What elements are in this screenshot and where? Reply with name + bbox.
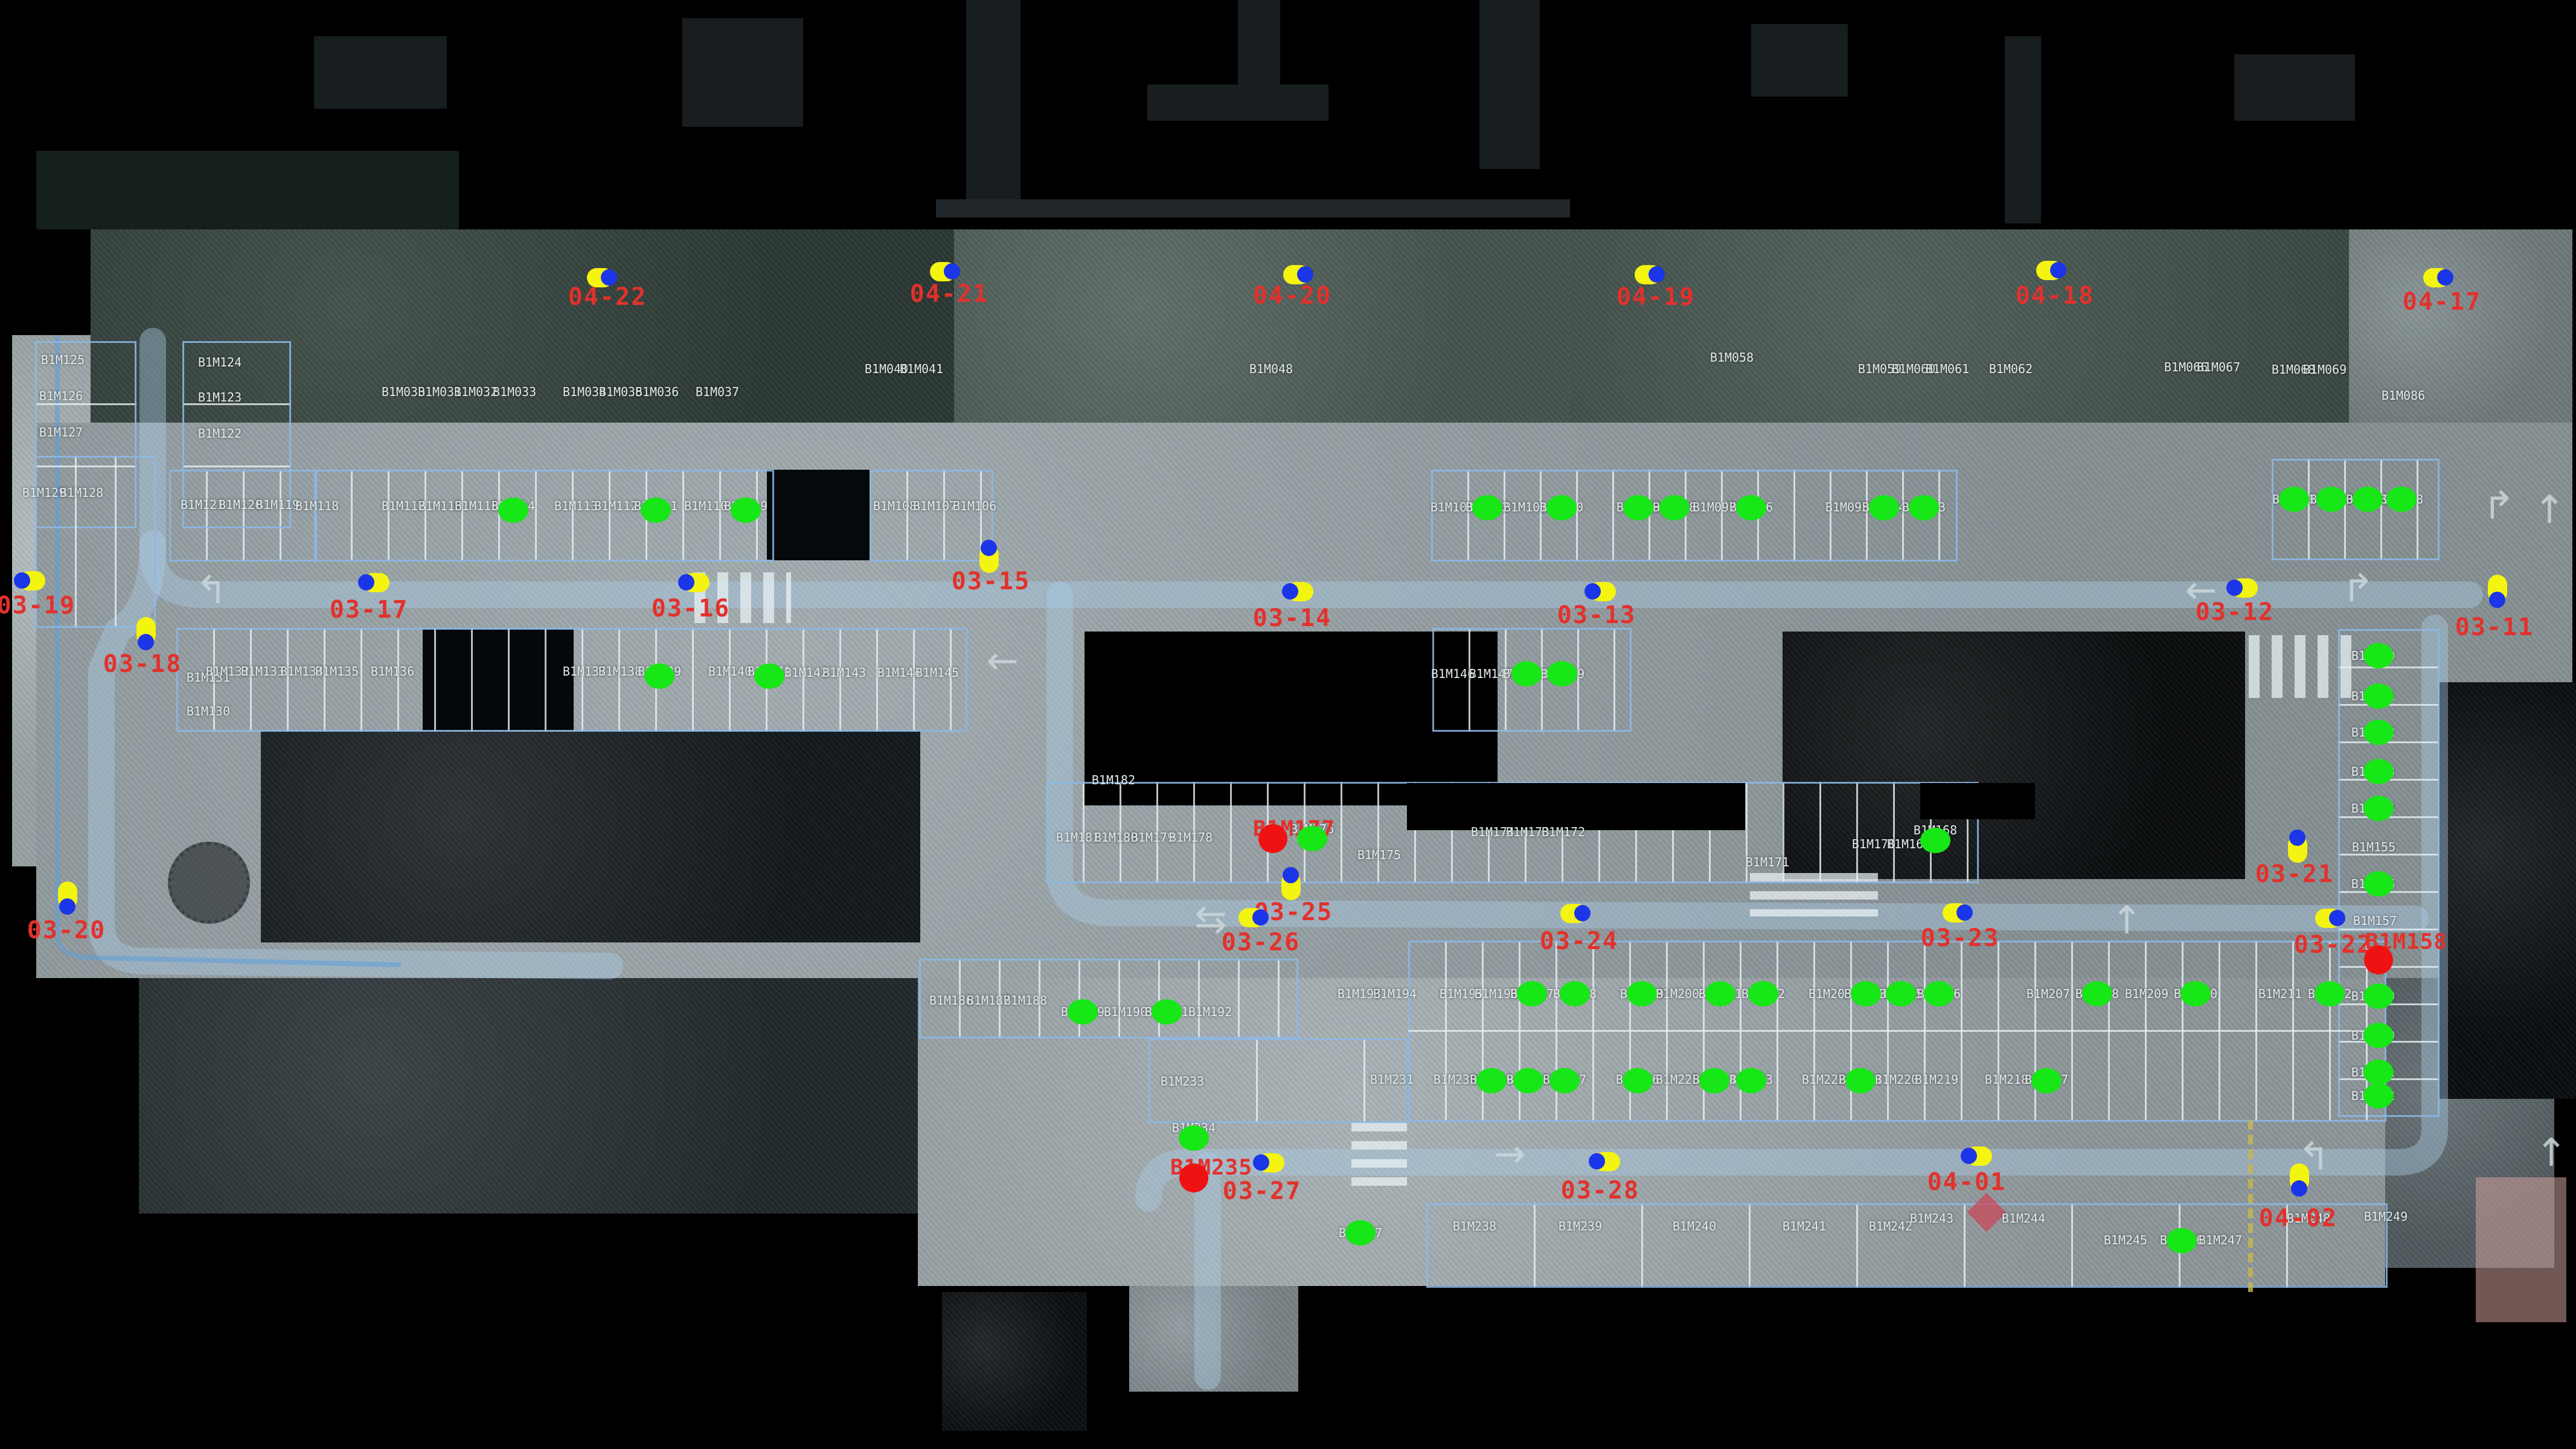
- station-blue-dot: [2437, 269, 2453, 286]
- scan-station-icon[interactable]: [1934, 892, 1976, 934]
- available-stall-marker[interactable]: [2315, 981, 2345, 1006]
- scan-station-icon[interactable]: [46, 874, 89, 916]
- station-blue-dot: [1648, 266, 1665, 283]
- scan-station-icon[interactable]: [578, 257, 621, 299]
- scan-station-icon[interactable]: [2276, 828, 2319, 870]
- scan-station-icon[interactable]: [674, 561, 717, 604]
- available-stall-marker[interactable]: [1623, 495, 1653, 520]
- available-stall-marker[interactable]: [2363, 759, 2394, 784]
- available-stall-marker[interactable]: [641, 497, 671, 523]
- available-stall-marker[interactable]: [731, 497, 761, 523]
- available-stall-marker[interactable]: [2363, 683, 2394, 709]
- station-blue-dot: [1252, 909, 1269, 926]
- scan-station-icon[interactable]: [1581, 571, 1623, 613]
- station-blue-dot: [981, 540, 997, 556]
- occupied-stall-marker[interactable]: [1179, 1163, 1208, 1192]
- parking-garage-scan-map: ↰←←↱↑↱⇆↑→↰↑ B1M030B1M031B1M032B1M033B1M0…: [0, 0, 2576, 1449]
- available-stall-marker[interactable]: [1511, 661, 1542, 686]
- available-stall-marker[interactable]: [2363, 796, 2394, 821]
- station-blue-dot: [1283, 867, 1299, 883]
- scan-station-icon[interactable]: [354, 561, 397, 604]
- available-stall-marker[interactable]: [1345, 1220, 1376, 1246]
- available-stall-marker[interactable]: [1736, 1068, 1766, 1093]
- available-stall-marker[interactable]: [1476, 1068, 1507, 1093]
- station-blue-dot: [1253, 1154, 1269, 1171]
- available-stall-marker[interactable]: [1869, 495, 1899, 520]
- station-blue-dot: [944, 263, 960, 280]
- available-stall-marker[interactable]: [1627, 981, 1657, 1006]
- available-stall-marker[interactable]: [2363, 720, 2394, 745]
- scan-point-label: 03-18: [103, 650, 182, 678]
- station-blue-dot: [14, 572, 30, 589]
- scan-station-icon[interactable]: [1585, 1140, 1627, 1183]
- scan-station-icon[interactable]: [968, 538, 1010, 580]
- available-stall-marker[interactable]: [2082, 981, 2112, 1006]
- station-blue-dot: [601, 269, 617, 286]
- available-stall-marker[interactable]: [1560, 981, 1590, 1006]
- available-stall-marker[interactable]: [1886, 981, 1916, 1006]
- available-stall-marker[interactable]: [2386, 487, 2417, 512]
- available-stall-marker[interactable]: [1920, 828, 1950, 853]
- station-blue-dot: [2226, 580, 2243, 596]
- scan-station-icon[interactable]: [921, 251, 964, 293]
- available-stall-marker[interactable]: [2167, 1228, 2197, 1253]
- available-stall-marker[interactable]: [1068, 999, 1098, 1025]
- station-blue-dot: [2050, 262, 2066, 278]
- markers-layer: 04-2204-2104-2004-1904-1804-1703-1903-18…: [0, 0, 2576, 1449]
- available-stall-marker[interactable]: [2363, 643, 2394, 668]
- scan-point-label: 03-20: [27, 916, 106, 944]
- available-stall-marker[interactable]: [1297, 826, 1327, 851]
- station-blue-dot: [678, 574, 694, 590]
- available-stall-marker[interactable]: [1909, 495, 1939, 520]
- available-stall-marker[interactable]: [1549, 1068, 1580, 1093]
- available-stall-marker[interactable]: [1699, 1068, 1729, 1093]
- available-stall-marker[interactable]: [2363, 984, 2394, 1009]
- scan-station-icon[interactable]: [1270, 865, 1312, 907]
- scan-station-icon[interactable]: [2223, 567, 2265, 609]
- scan-station-icon[interactable]: [1249, 1142, 1292, 1184]
- available-stall-marker[interactable]: [2363, 871, 2394, 897]
- scan-station-icon[interactable]: [1626, 254, 1668, 296]
- station-blue-dot: [1961, 1148, 1977, 1164]
- available-stall-marker[interactable]: [2363, 1083, 2394, 1108]
- available-stall-marker[interactable]: [1513, 1068, 1543, 1093]
- station-blue-dot: [138, 634, 154, 650]
- available-stall-marker[interactable]: [1152, 999, 1182, 1025]
- occupied-stall-marker[interactable]: [2364, 945, 2393, 974]
- available-stall-marker[interactable]: [2316, 487, 2347, 512]
- occupied-stall-marker[interactable]: [1258, 824, 1287, 853]
- scan-station-icon[interactable]: [1230, 897, 1272, 939]
- scan-point-label: 04-02: [2259, 1204, 2337, 1232]
- scan-station-icon[interactable]: [1278, 571, 1321, 613]
- available-stall-marker[interactable]: [1472, 495, 1502, 520]
- station-blue-dot: [1282, 583, 1298, 600]
- available-stall-marker[interactable]: [1924, 981, 1954, 1006]
- scan-station-icon[interactable]: [2278, 1156, 2321, 1198]
- station-blue-dot: [1584, 583, 1601, 600]
- station-blue-dot: [2289, 830, 2305, 846]
- available-stall-marker[interactable]: [754, 664, 784, 689]
- available-stall-marker[interactable]: [644, 664, 674, 689]
- available-stall-marker[interactable]: [498, 497, 528, 523]
- available-stall-marker[interactable]: [2353, 487, 2383, 512]
- station-blue-dot: [1297, 266, 1313, 283]
- available-stall-marker[interactable]: [1736, 495, 1766, 520]
- available-stall-marker[interactable]: [1517, 981, 1547, 1006]
- station-blue-dot: [358, 574, 374, 590]
- available-stall-marker[interactable]: [1845, 1068, 1876, 1093]
- available-stall-marker[interactable]: [2363, 1060, 2394, 1085]
- available-stall-marker[interactable]: [1659, 495, 1690, 520]
- station-blue-dot: [2329, 910, 2345, 926]
- available-stall-marker[interactable]: [1546, 495, 1577, 520]
- scan-station-icon[interactable]: [125, 610, 167, 652]
- station-blue-dot: [59, 898, 75, 915]
- available-stall-marker[interactable]: [1748, 981, 1778, 1006]
- available-stall-marker[interactable]: [1179, 1125, 1209, 1151]
- scan-station-icon[interactable]: [2028, 249, 2070, 292]
- available-stall-marker[interactable]: [2031, 1068, 2062, 1093]
- available-stall-marker[interactable]: [2279, 487, 2309, 512]
- available-stall-marker[interactable]: [1851, 981, 1881, 1006]
- scan-station-icon[interactable]: [1552, 892, 1594, 935]
- station-blue-dot: [1574, 905, 1591, 921]
- scan-station-icon[interactable]: [10, 560, 53, 602]
- station-blue-dot: [1589, 1153, 1605, 1169]
- scan-station-icon[interactable]: [2307, 897, 2349, 939]
- available-stall-marker[interactable]: [1547, 661, 1577, 686]
- scan-station-icon[interactable]: [2415, 257, 2457, 299]
- scan-station-icon[interactable]: [1957, 1135, 1999, 1177]
- station-blue-dot: [1956, 904, 1973, 921]
- station-blue-dot: [2489, 592, 2505, 608]
- available-stall-marker[interactable]: [2363, 1023, 2394, 1048]
- available-stall-marker[interactable]: [2180, 981, 2211, 1006]
- scan-point-label: 03-11: [2455, 613, 2534, 641]
- station-blue-dot: [2291, 1180, 2307, 1197]
- available-stall-marker[interactable]: [1705, 981, 1735, 1006]
- scan-station-icon[interactable]: [2476, 568, 2519, 610]
- available-stall-marker[interactable]: [1623, 1068, 1653, 1093]
- scan-station-icon[interactable]: [1275, 254, 1317, 296]
